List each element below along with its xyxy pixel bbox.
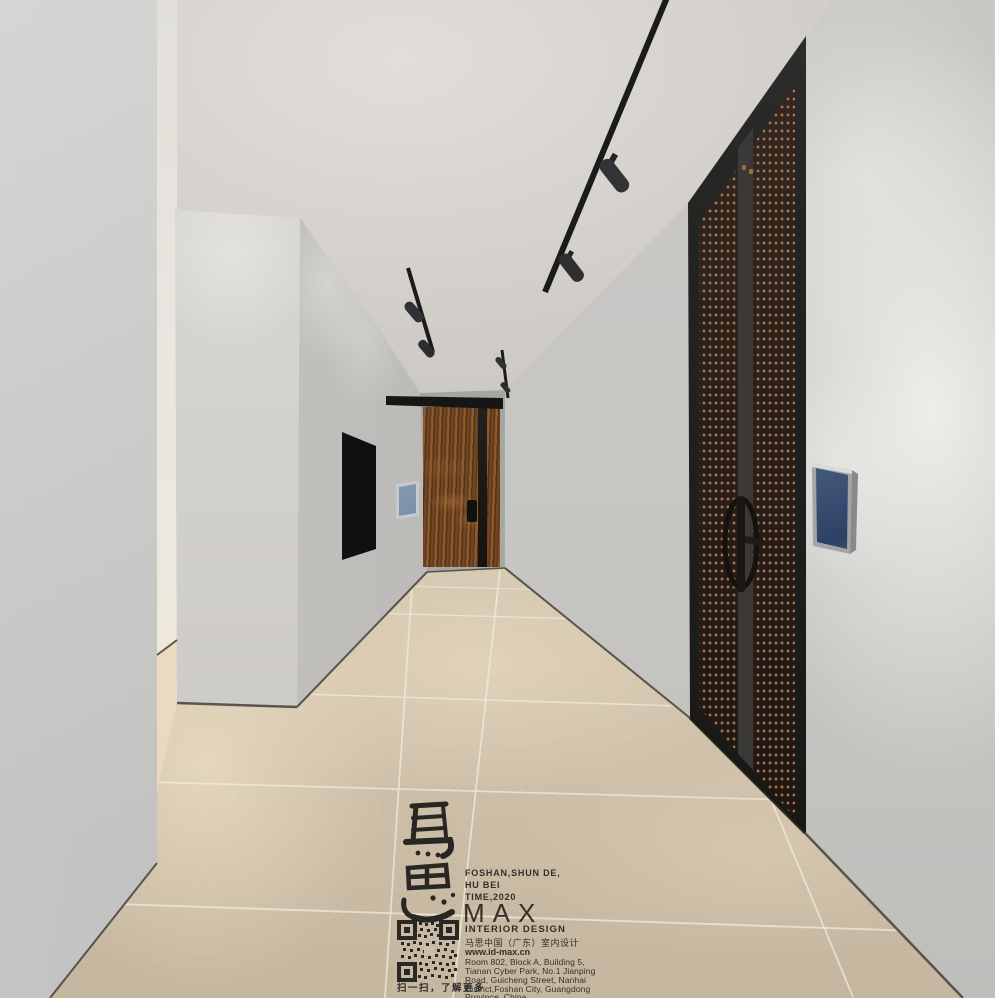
website-url: www.id-max.cn bbox=[465, 947, 530, 957]
hallway-rendering: FOSHAN,SHUN DE, HU BEI TIME,2020 MAX INT… bbox=[0, 0, 995, 998]
masi-calligraphy-logo bbox=[0, 0, 995, 998]
tagline-line-2: HU BEI bbox=[465, 880, 500, 890]
logo-subtitle: INTERIOR DESIGN bbox=[465, 924, 566, 935]
qr-code bbox=[399, 922, 457, 980]
qr-caption: 扫一扫，了解更多 bbox=[397, 980, 485, 994]
tagline-line-1: FOSHAN,SHUN DE, bbox=[465, 868, 561, 878]
